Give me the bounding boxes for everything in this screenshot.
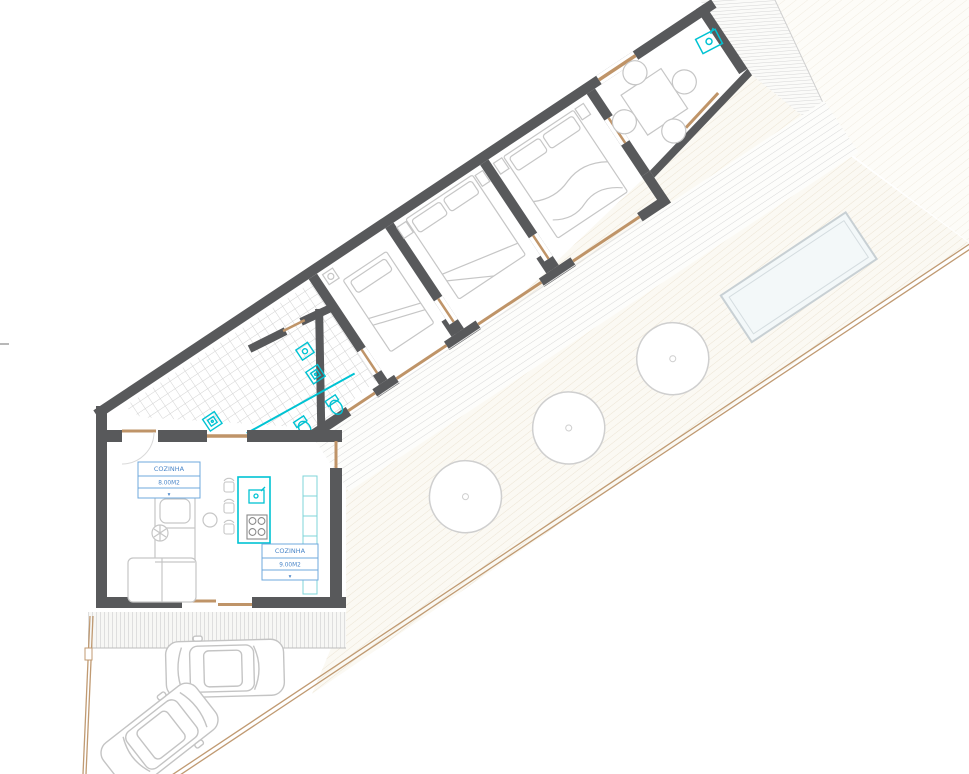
living-wall-north-seg [158, 430, 207, 442]
bar-stools [224, 478, 234, 534]
kitchen-island [224, 477, 270, 543]
room-label-1-name: COZINHA [154, 465, 185, 473]
plant [152, 525, 168, 541]
living-wall-north-seg [247, 430, 342, 442]
room-label-2-name: COZINHA [275, 547, 306, 555]
room-label-2-area: 9.00M2 [279, 563, 301, 569]
room-label-2-mark: ▾ [289, 574, 292, 580]
sofa-cushion [160, 499, 190, 523]
room-label-1: COZINHA 8.00M2 ▾ [138, 462, 200, 498]
living-wall-north-seg [96, 430, 122, 442]
room-label-1-mark: ▾ [168, 492, 171, 498]
living-wall-east [330, 468, 342, 608]
floor-plan-canvas: COZINHA 8.00M2 ▾ COZINHA 9.00M2 ▾ [0, 0, 969, 774]
floor-plan-drawing: COZINHA 8.00M2 ▾ COZINHA 9.00M2 ▾ [0, 0, 969, 774]
side-table [203, 513, 217, 527]
room-label-2: COZINHA 9.00M2 ▾ [262, 544, 318, 580]
room-label-1-area: 8.00M2 [158, 481, 180, 487]
gate-marker [85, 648, 92, 660]
